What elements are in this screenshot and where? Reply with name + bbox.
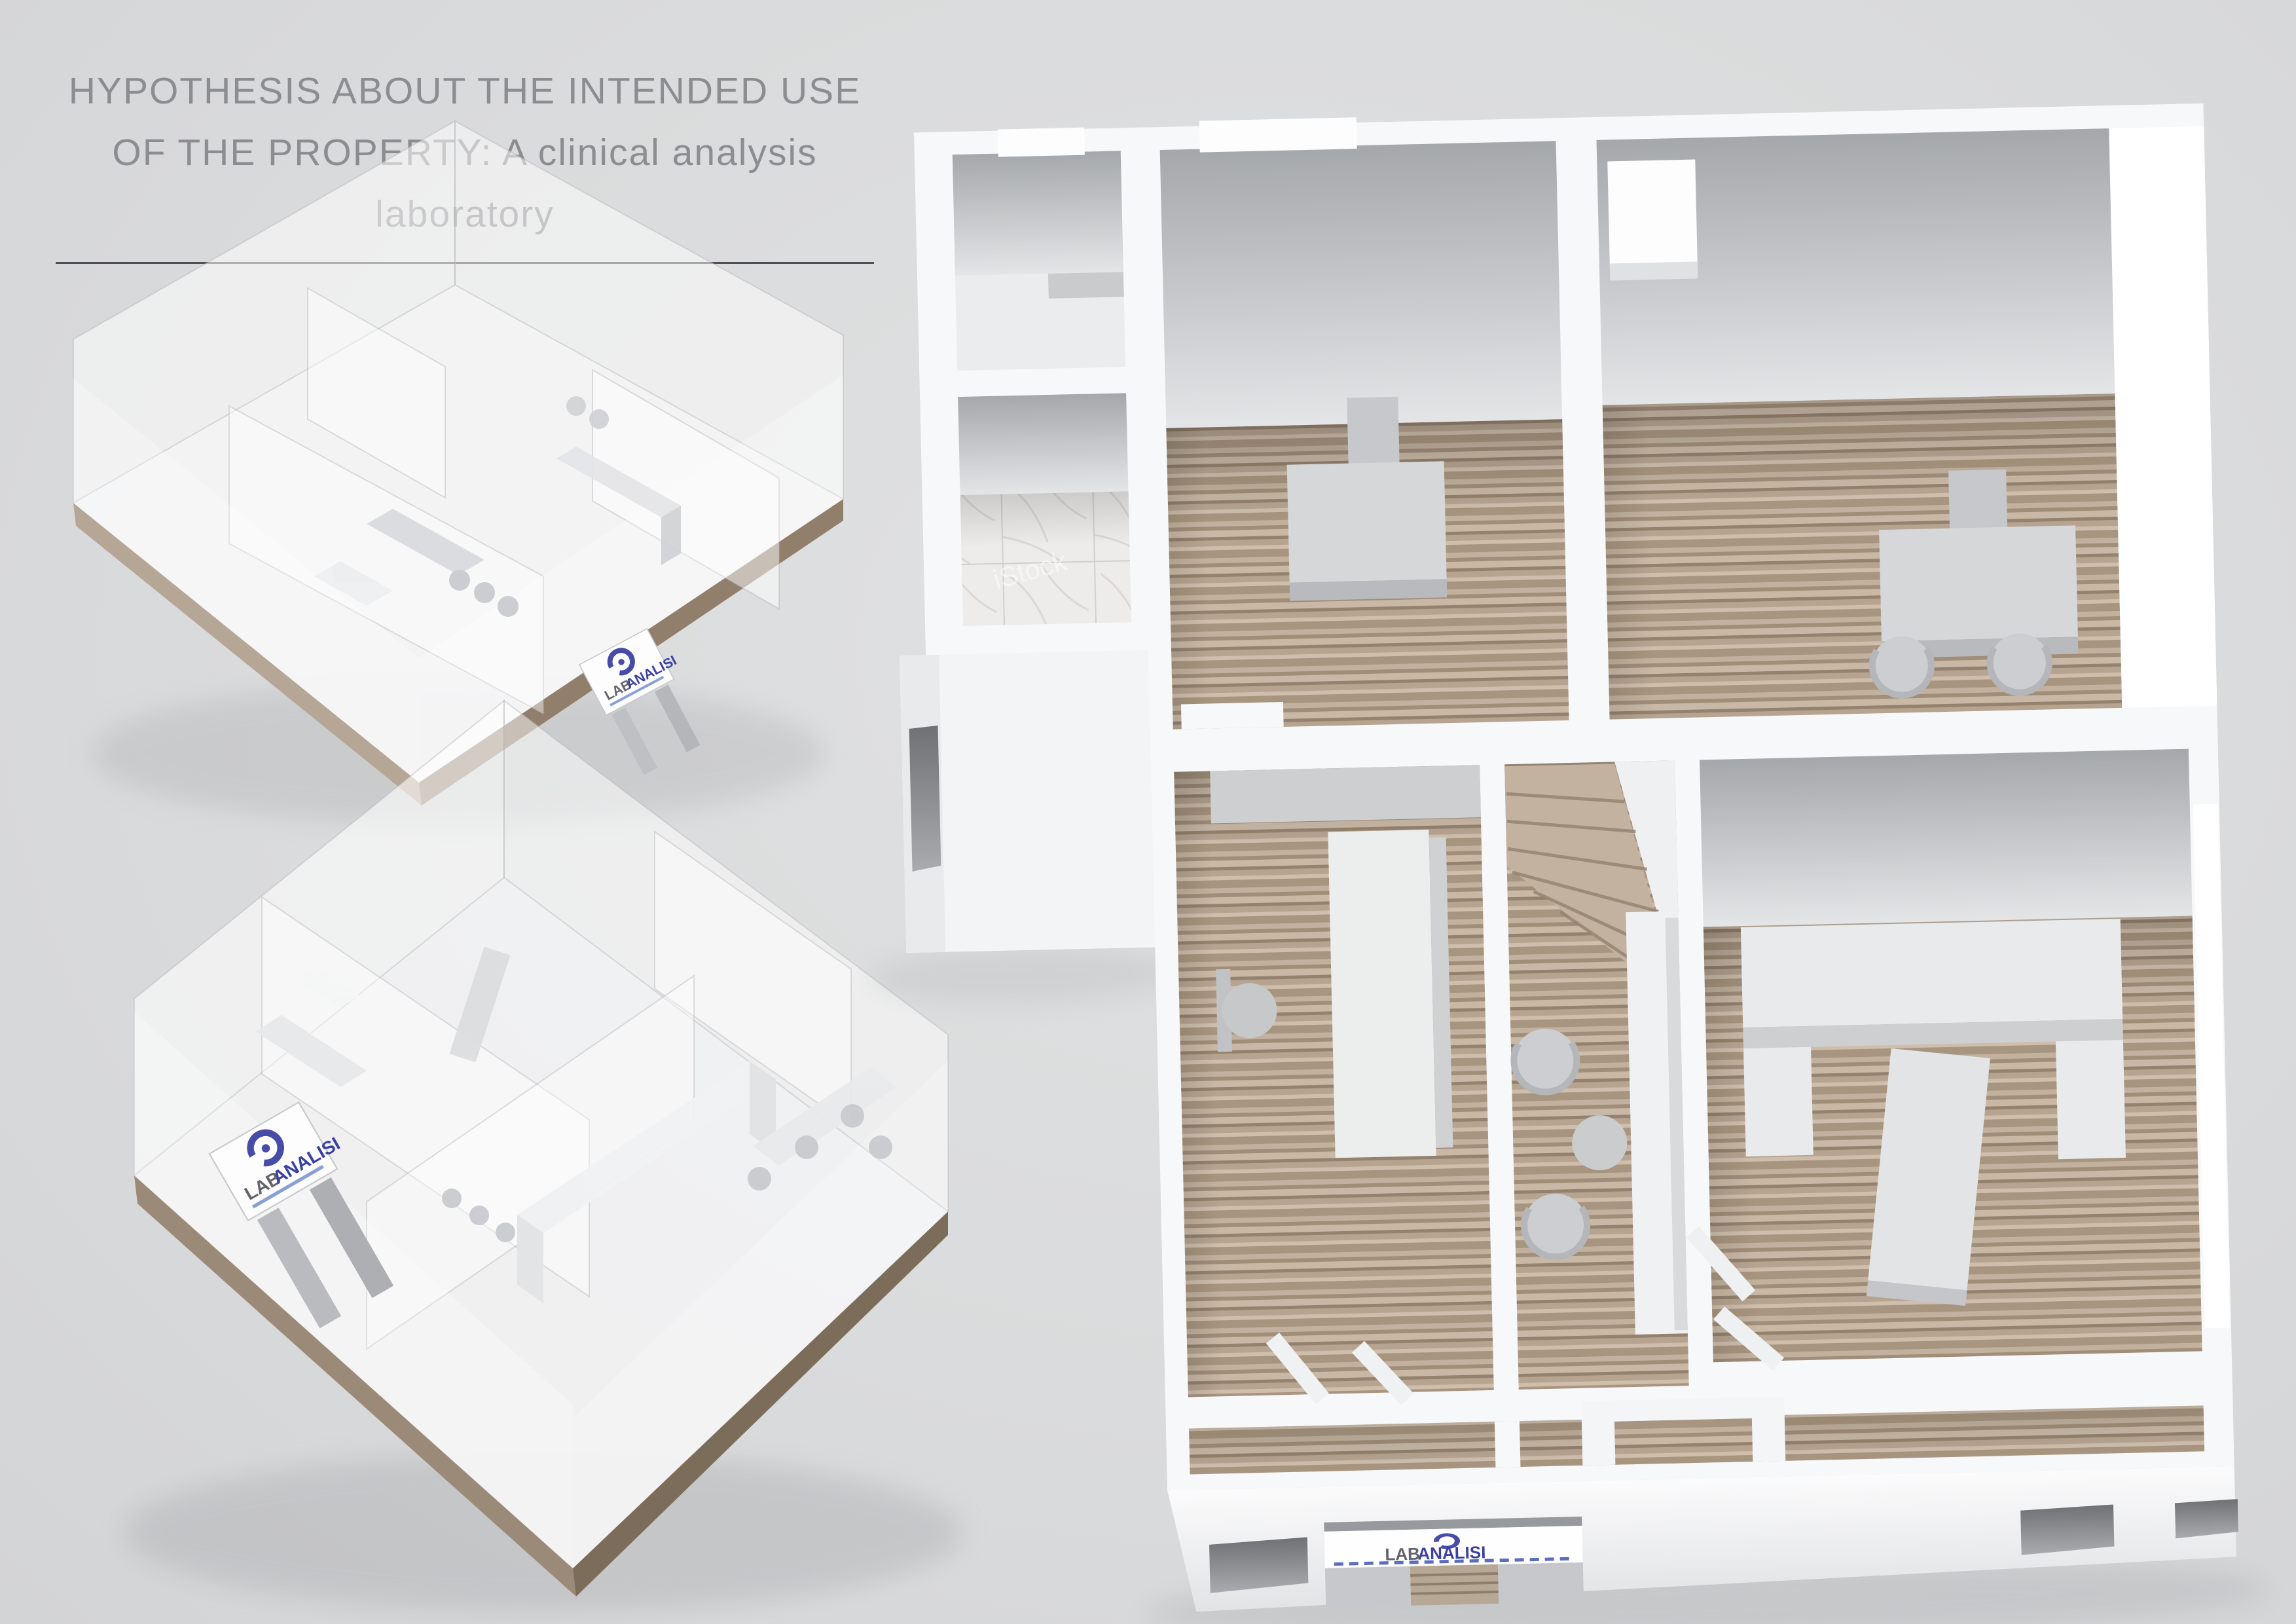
- presentation-board: HYPOTHESIS ABOUT THE INTENDED USE OF THE…: [0, 0, 2296, 1624]
- left-wing: [900, 650, 1155, 953]
- office-chair: [1347, 397, 1399, 467]
- window-recess: [2175, 1499, 2238, 1538]
- entrance-pillar: [1325, 1566, 1411, 1608]
- ghost-render-top: [73, 121, 843, 825]
- stair-hall: [1504, 760, 1689, 1390]
- office-room-2: [1597, 126, 2217, 720]
- office-room-1: [1159, 113, 1569, 729]
- reception-counter: [1328, 829, 1453, 1158]
- utility-room: [952, 126, 1125, 371]
- entrance-pillar: [1498, 1562, 1584, 1600]
- entrance-steps: [1410, 1564, 1499, 1606]
- ghost-render-bottom: [124, 701, 962, 1611]
- main-entrance: LAB ANALISI: [1324, 1517, 1584, 1608]
- reception-corridor: [1174, 765, 1494, 1410]
- wing-window-recess: [909, 726, 941, 872]
- door-opening: [1181, 702, 1284, 729]
- window-recess: [2020, 1504, 2115, 1555]
- renders-canvas: LAB ANALISI: [0, 0, 2296, 1624]
- sideboard: [1210, 765, 1481, 823]
- bathroom: iStock: [958, 393, 1131, 626]
- window-opening: [998, 128, 1085, 157]
- wall-shelf: [1048, 272, 1124, 299]
- window-wall-glow: [2109, 126, 2217, 708]
- window-niche: [1607, 159, 1698, 280]
- divider-bench: [1626, 911, 1688, 1335]
- laboratory-room: [1675, 748, 2231, 1373]
- window-opening: [1199, 117, 1357, 152]
- main-render: iStock: [848, 98, 2270, 1624]
- niche-room: [1581, 1397, 1785, 1466]
- office-chair: [1948, 470, 2007, 536]
